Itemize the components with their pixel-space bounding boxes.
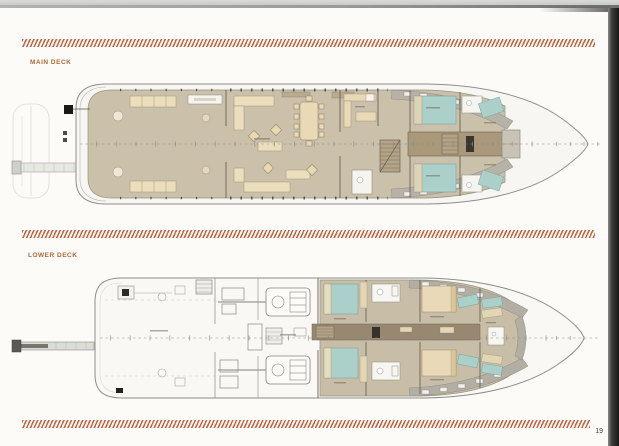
scanned-brochure-page: MAIN DECK LOWER DECK 19 xyxy=(0,0,619,446)
divider-stripe-middle xyxy=(22,230,595,238)
corridor xyxy=(312,324,480,340)
lower-deck-label: LOWER DECK xyxy=(28,253,77,260)
passerelle-lower xyxy=(12,340,94,352)
ghost-platform xyxy=(13,104,49,198)
page-number: 19 xyxy=(595,428,603,435)
lower-deck-plan xyxy=(10,264,610,409)
scan-top-edge-line xyxy=(0,5,619,8)
main-deck-plan xyxy=(10,76,610,216)
scan-corner-shadow xyxy=(539,6,609,12)
divider-stripe-top xyxy=(22,39,595,47)
divider-stripe-bottom xyxy=(22,420,590,428)
main-deck-label: MAIN DECK xyxy=(30,60,71,67)
